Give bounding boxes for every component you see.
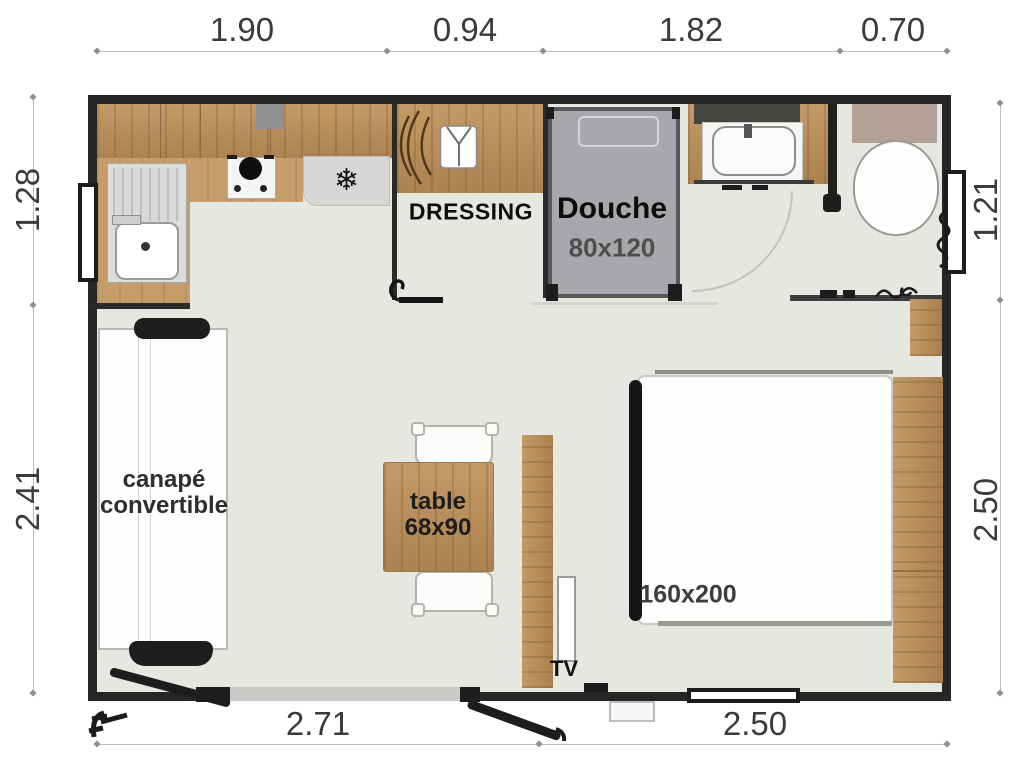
shower-corner-mark (668, 284, 682, 301)
stove-edge (264, 155, 274, 159)
dim-bottom-1: 2.71 (286, 705, 350, 743)
entry-door-leaf-right (466, 699, 561, 741)
dim-left-2: 2.41 (9, 467, 47, 531)
dim-left-1: 1.28 (9, 168, 47, 232)
tv-label: TV (550, 656, 578, 682)
dim-tick (836, 47, 843, 54)
sofa-armrest (129, 641, 213, 666)
tv-stand (584, 683, 608, 692)
stove-edge (227, 155, 237, 159)
dim-tick (539, 47, 546, 54)
cabinet-divider (200, 104, 201, 158)
dim-top-2: 0.94 (433, 11, 497, 49)
chair-corner (485, 603, 499, 617)
kitchen-upper-cabinets (97, 104, 392, 158)
dim-line-top (97, 51, 947, 52)
dim-top-4: 0.70 (861, 11, 925, 49)
shower-corner-mark (672, 107, 680, 119)
vanity-handle (722, 185, 742, 190)
shower-size-label: 80x120 (569, 233, 656, 264)
range-hood (256, 104, 284, 129)
bed-size-label: 160x200 (639, 581, 736, 610)
bed-head-line (655, 370, 893, 374)
dressing-label: DRESSING (409, 199, 533, 226)
sofa-label-line2: convertible (100, 492, 228, 520)
dim-tick (996, 99, 1003, 106)
fridge: ❄ (303, 156, 390, 206)
stove-knob (234, 185, 241, 192)
vanity-tap (744, 124, 752, 138)
tv-screen (557, 576, 576, 662)
dim-tick (535, 740, 542, 747)
vanity-backsplash (694, 104, 800, 124)
wardrobe (397, 104, 543, 193)
dining-chair (415, 425, 493, 465)
headboard-panel (893, 377, 943, 683)
dim-tick (93, 47, 100, 54)
snowflake-icon: ❄ (334, 166, 359, 196)
cabinet-divider (160, 104, 161, 158)
shower-corner-mark (546, 107, 554, 119)
sofa-label-line1: canapé (123, 466, 206, 494)
headboard-divider (893, 570, 943, 572)
divider-door-pivot (823, 194, 841, 212)
vanity-edge (694, 180, 814, 184)
dim-tick (383, 47, 390, 54)
dining-chair (415, 571, 493, 612)
window-right (944, 170, 966, 274)
shower-sill-shadow (531, 302, 718, 305)
bathroom-divider-wall (828, 104, 837, 204)
chair-corner (485, 422, 499, 436)
chair-corner (411, 422, 425, 436)
shower-head-tray (578, 116, 659, 147)
partition-handle (843, 290, 855, 298)
dim-top-3: 1.82 (659, 11, 723, 49)
counter-end-edge (88, 303, 190, 309)
dim-tick (943, 740, 950, 747)
dim-right-2: 2.50 (967, 478, 1005, 542)
dim-top-1: 1.90 (210, 11, 274, 49)
window-bottom (687, 688, 800, 703)
sink-drainer (113, 168, 179, 221)
tv-partition-wall (522, 435, 553, 688)
door-handle-left (89, 713, 127, 737)
stove-knob (260, 185, 267, 192)
stove-burner (239, 157, 262, 180)
partition-handle (820, 290, 837, 298)
dim-tick (29, 689, 36, 696)
dim-tick (943, 47, 950, 54)
entry-threshold (228, 687, 468, 701)
table-label-line2: 68x90 (405, 514, 472, 542)
bed-foot-line (658, 621, 892, 626)
vanity-handle (752, 185, 768, 190)
vanity-sink-bowl (712, 126, 796, 176)
toilet-cistern (852, 104, 937, 143)
doorstep (609, 701, 655, 722)
sink-drain (141, 242, 150, 251)
floor-plan: 1.90 0.94 1.82 0.70 1.28 2.41 1.21 2.50 … (0, 0, 1024, 759)
sink-basin (115, 222, 179, 280)
shower-corner-mark (546, 284, 558, 301)
shower-label: Douche (557, 192, 667, 226)
window-left (78, 183, 98, 282)
dim-line-bottom (97, 744, 947, 745)
sofa-armrest (134, 318, 210, 339)
dim-tick (29, 93, 36, 100)
dim-right-1: 1.21 (967, 178, 1005, 242)
sink-faucet (112, 215, 141, 225)
dim-tick (93, 740, 100, 747)
dim-bottom-2: 2.50 (723, 705, 787, 743)
dim-tick (29, 301, 36, 308)
chair-corner (411, 603, 425, 617)
dim-tick (996, 296, 1003, 303)
table-label-line1: table (410, 488, 466, 516)
wall-shelf (910, 299, 942, 356)
toilet-bowl (853, 140, 939, 236)
dim-tick (996, 689, 1003, 696)
